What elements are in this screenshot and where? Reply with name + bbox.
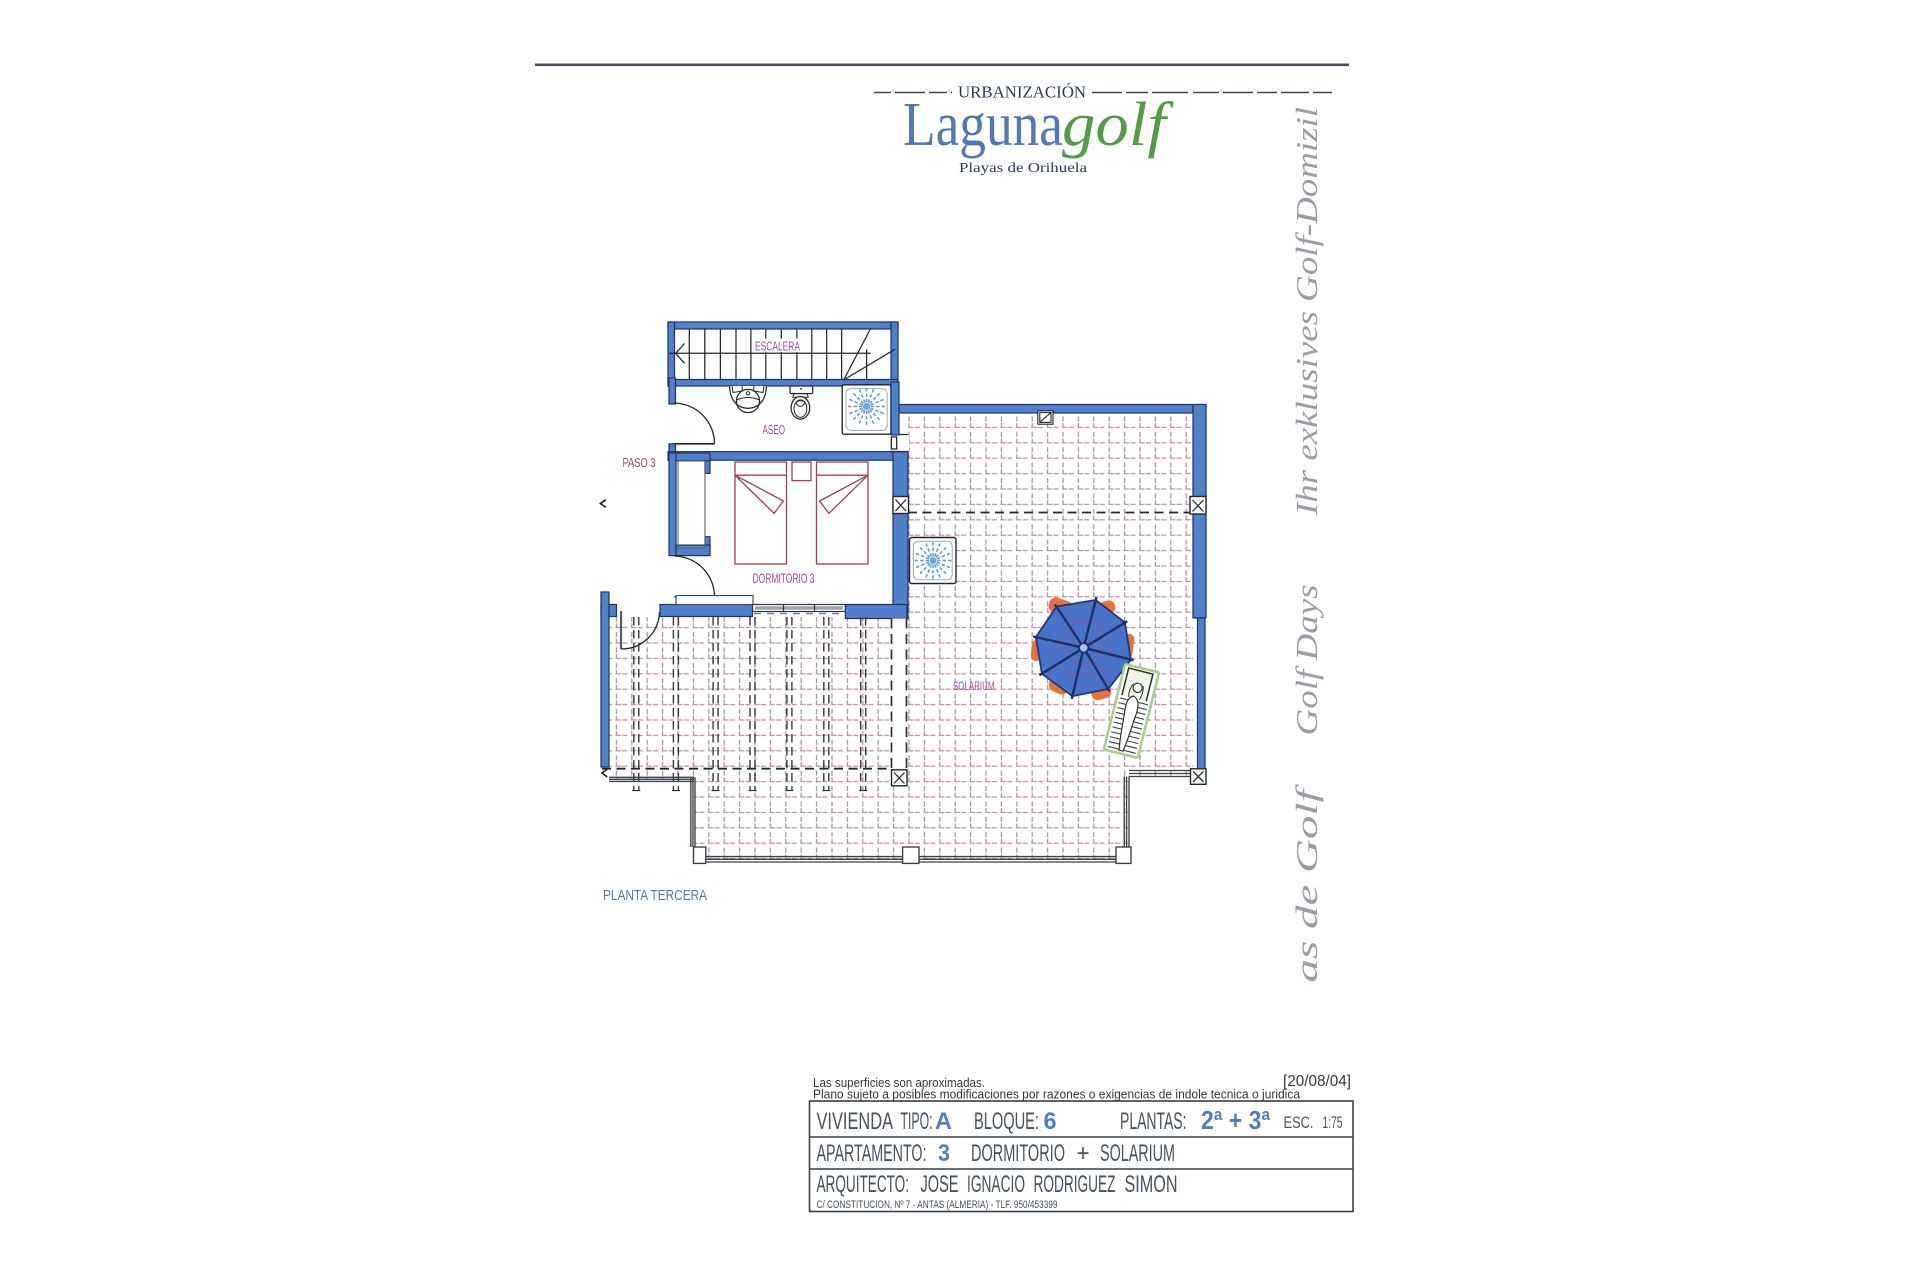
svg-text:1:75: 1:75 [1323, 1113, 1343, 1132]
svg-text:VIVIENDA: VIVIENDA [817, 1108, 894, 1135]
svg-text:A: A [935, 1108, 952, 1135]
svg-text:Golf Days: Golf Days [1289, 585, 1324, 736]
svg-text:Ihr exklusives Golf-Domizil: Ihr exklusives Golf-Domizil [1289, 107, 1324, 516]
svg-text:APARTAMENTO:: APARTAMENTO: [817, 1140, 927, 1167]
svg-text:SOLARIUM: SOLARIUM [1100, 1140, 1175, 1167]
svg-text:2ª + 3ª: 2ª + 3ª [1201, 1105, 1270, 1135]
svg-text:PLANTAS:: PLANTAS: [1120, 1108, 1187, 1135]
svg-text:TIPO:: TIPO: [901, 1108, 933, 1135]
svg-text:[20/08/04]: [20/08/04] [1283, 1073, 1351, 1090]
svg-text:PLANTA TERCERA: PLANTA TERCERA [603, 887, 707, 904]
svg-text:+: + [1077, 1140, 1090, 1167]
svg-text:JOSE: JOSE [921, 1171, 959, 1198]
svg-text:3: 3 [938, 1140, 950, 1167]
svg-text:Laguna: Laguna [903, 91, 1063, 159]
svg-text:as de Golf: as de Golf [1289, 783, 1324, 983]
svg-text:6: 6 [1044, 1108, 1057, 1135]
svg-text:PASO 3: PASO 3 [623, 456, 656, 470]
svg-text:DORMITORIO: DORMITORIO [971, 1140, 1065, 1167]
svg-text:BLOQUE:: BLOQUE: [974, 1108, 1039, 1135]
svg-text:Playas de Orihuela: Playas de Orihuela [959, 161, 1088, 176]
svg-text:SOLARIUM: SOLARIUM [953, 681, 995, 693]
svg-text:C/ CONSTITUCION, Nº 7 - ANTAS: C/ CONSTITUCION, Nº 7 - ANTAS (ALMERIA) … [817, 1199, 1058, 1211]
svg-text:golf: golf [1062, 91, 1174, 159]
svg-text:ESC.: ESC. [1284, 1113, 1314, 1132]
svg-text:Plano sujeto a posibles modifi: Plano sujeto a posibles modificaciones p… [813, 1087, 1301, 1102]
svg-text:IGNACIO: IGNACIO [967, 1171, 1025, 1198]
svg-text:DORMITORIO 3: DORMITORIO 3 [753, 570, 815, 586]
svg-text:ASEO: ASEO [763, 422, 786, 437]
svg-text:ESCALERA: ESCALERA [755, 340, 800, 354]
svg-text:ARQUITECTO:: ARQUITECTO: [817, 1171, 910, 1198]
svg-text:SIMON: SIMON [1125, 1171, 1178, 1198]
svg-text:RODRIGUEZ: RODRIGUEZ [1034, 1171, 1116, 1198]
